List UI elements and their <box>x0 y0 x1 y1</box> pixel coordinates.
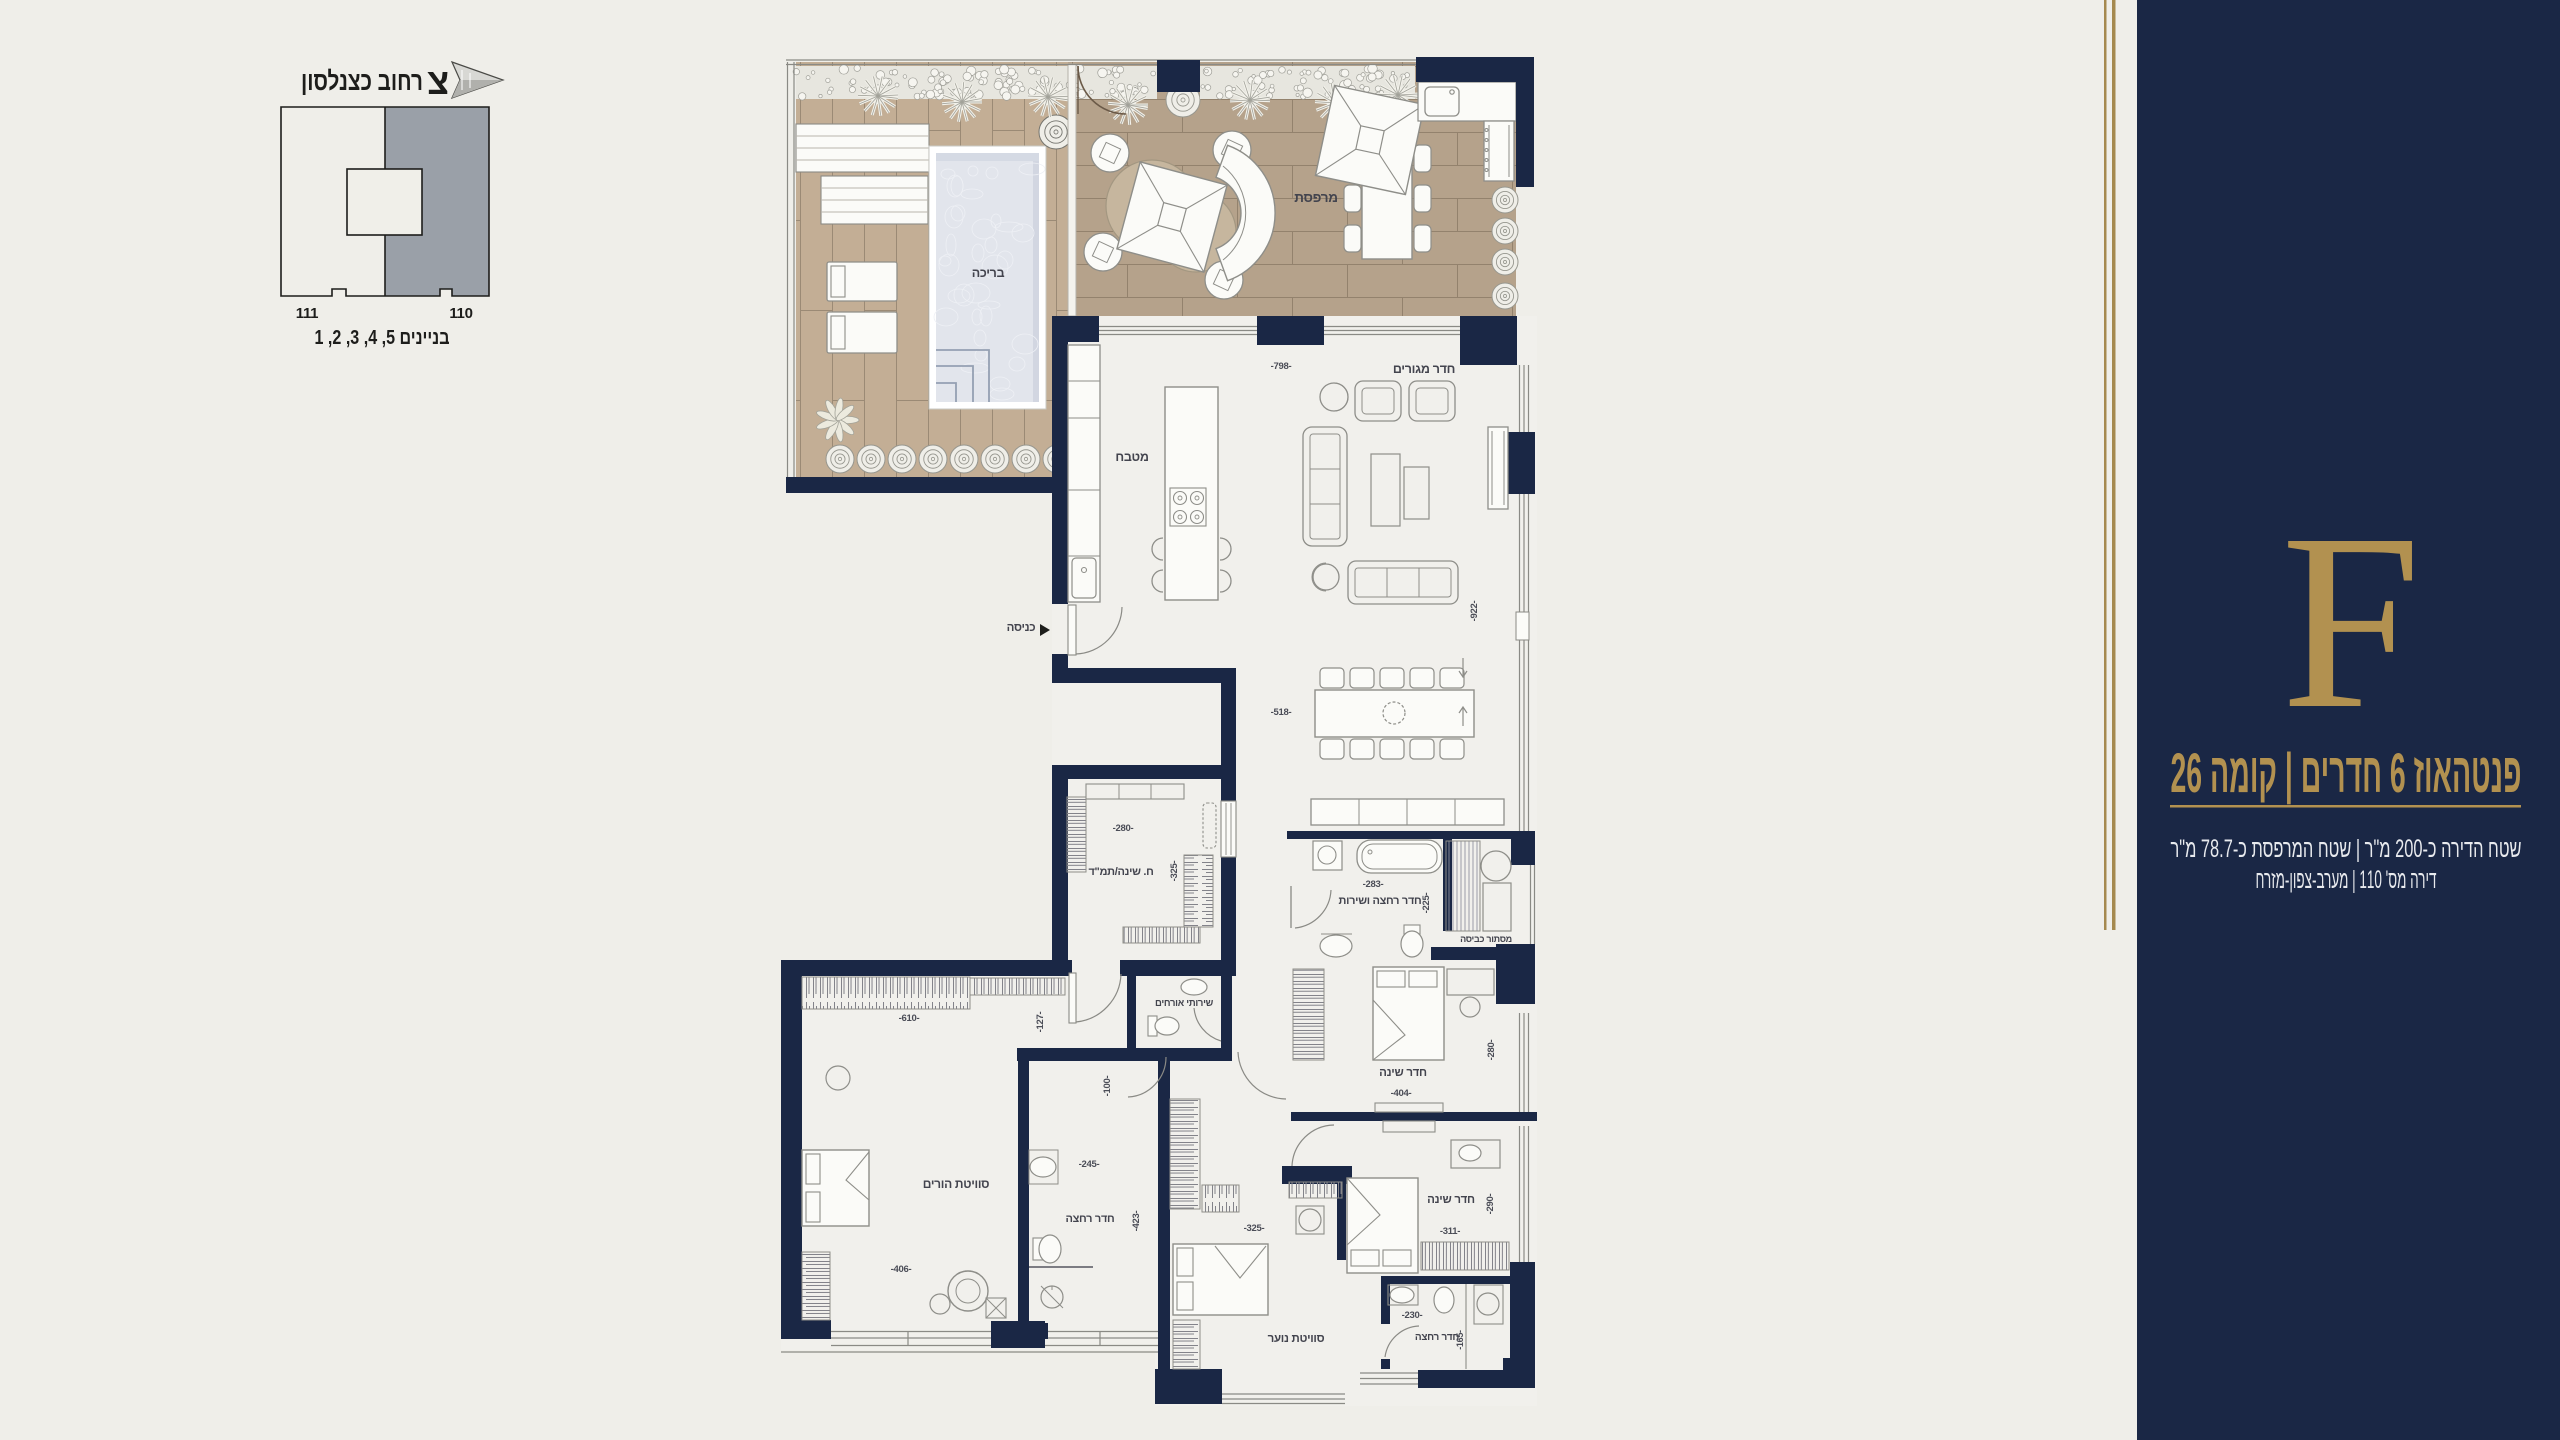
svg-text:-406-: -406- <box>891 1264 912 1275</box>
svg-text:-225-: -225- <box>1421 893 1432 914</box>
svg-text:מרפסת: מרפסת <box>1294 190 1337 205</box>
svg-text:שירותי אורחים: שירותי אורחים <box>1155 998 1214 1009</box>
svg-text:חדר רחצה: חדר רחצה <box>1415 1332 1460 1343</box>
svg-text:-798-: -798- <box>1271 361 1292 372</box>
svg-text:-311-: -311- <box>1440 1226 1460 1237</box>
svg-text:בניינים 5, 4, 3, 2, 1: בניינים 5, 4, 3, 2, 1 <box>315 327 450 349</box>
svg-text:-518-: -518- <box>1271 707 1292 718</box>
svg-text:-280-: -280- <box>1113 823 1134 834</box>
svg-text:חדר שינה: חדר שינה <box>1379 1067 1427 1079</box>
svg-text:חדר רחצה: חדר רחצה <box>1066 1213 1115 1225</box>
svg-text:-100-: -100- <box>1102 1076 1113 1097</box>
svg-text:-245-: -245- <box>1079 1159 1100 1170</box>
svg-text:-610-: -610- <box>899 1013 920 1024</box>
svg-text:רחוב כצנלסון: רחוב כצנלסון <box>301 66 423 96</box>
svg-text:-127-: -127- <box>1035 1012 1046 1033</box>
svg-text:-165-: -165- <box>1455 1330 1465 1350</box>
svg-text:-404-: -404- <box>1391 1088 1412 1099</box>
svg-text:-230-: -230- <box>1402 1310 1423 1321</box>
svg-text:-423-: -423- <box>1131 1211 1142 1232</box>
svg-text:-325-: -325- <box>1169 861 1180 882</box>
svg-text:סוויטת הורים: סוויטת הורים <box>923 1177 990 1191</box>
svg-text:ח. שינה/תמ"ד: ח. שינה/תמ"ד <box>1088 866 1153 878</box>
svg-text:111: 111 <box>296 305 318 322</box>
svg-text:שטח הדירה כ-200 מ"ר | שטח המרפ: שטח הדירה כ-200 מ"ר | שטח המרפסת כ-78.7 … <box>2171 835 2522 863</box>
svg-text:מסתור כביסה: מסתור כביסה <box>1460 934 1512 944</box>
svg-text:פנטהאוז 6 חדרים | קומה 26: פנטהאוז 6 חדרים | קומה 26 <box>2171 741 2522 805</box>
svg-text:בריכה: בריכה <box>972 266 1005 280</box>
svg-text:-290-: -290- <box>1485 1194 1496 1215</box>
svg-text:110: 110 <box>449 305 472 322</box>
svg-text:-922-: -922- <box>1469 601 1480 622</box>
svg-text:חדר רחצה ושירות: חדר רחצה ושירות <box>1339 895 1422 907</box>
svg-text:סוויטת נוער: סוויטת נוער <box>1268 1333 1325 1345</box>
svg-text:דירה מס' 110 | מערב-צפון-מזרח: דירה מס' 110 | מערב-צפון-מזרח <box>2256 866 2437 894</box>
svg-text:-280-: -280- <box>1486 1040 1497 1061</box>
svg-text:-283-: -283- <box>1363 879 1384 890</box>
svg-text:F: F <box>2281 481 2421 761</box>
svg-text:חדר מגורים: חדר מגורים <box>1393 362 1455 376</box>
svg-text:-325-: -325- <box>1244 1223 1265 1234</box>
svg-text:חדר שינה: חדר שינה <box>1427 1194 1475 1206</box>
svg-text:מטבח: מטבח <box>1115 450 1148 464</box>
svg-text:כניסה: כניסה <box>1007 622 1036 634</box>
svg-text:צ: צ <box>427 61 449 102</box>
